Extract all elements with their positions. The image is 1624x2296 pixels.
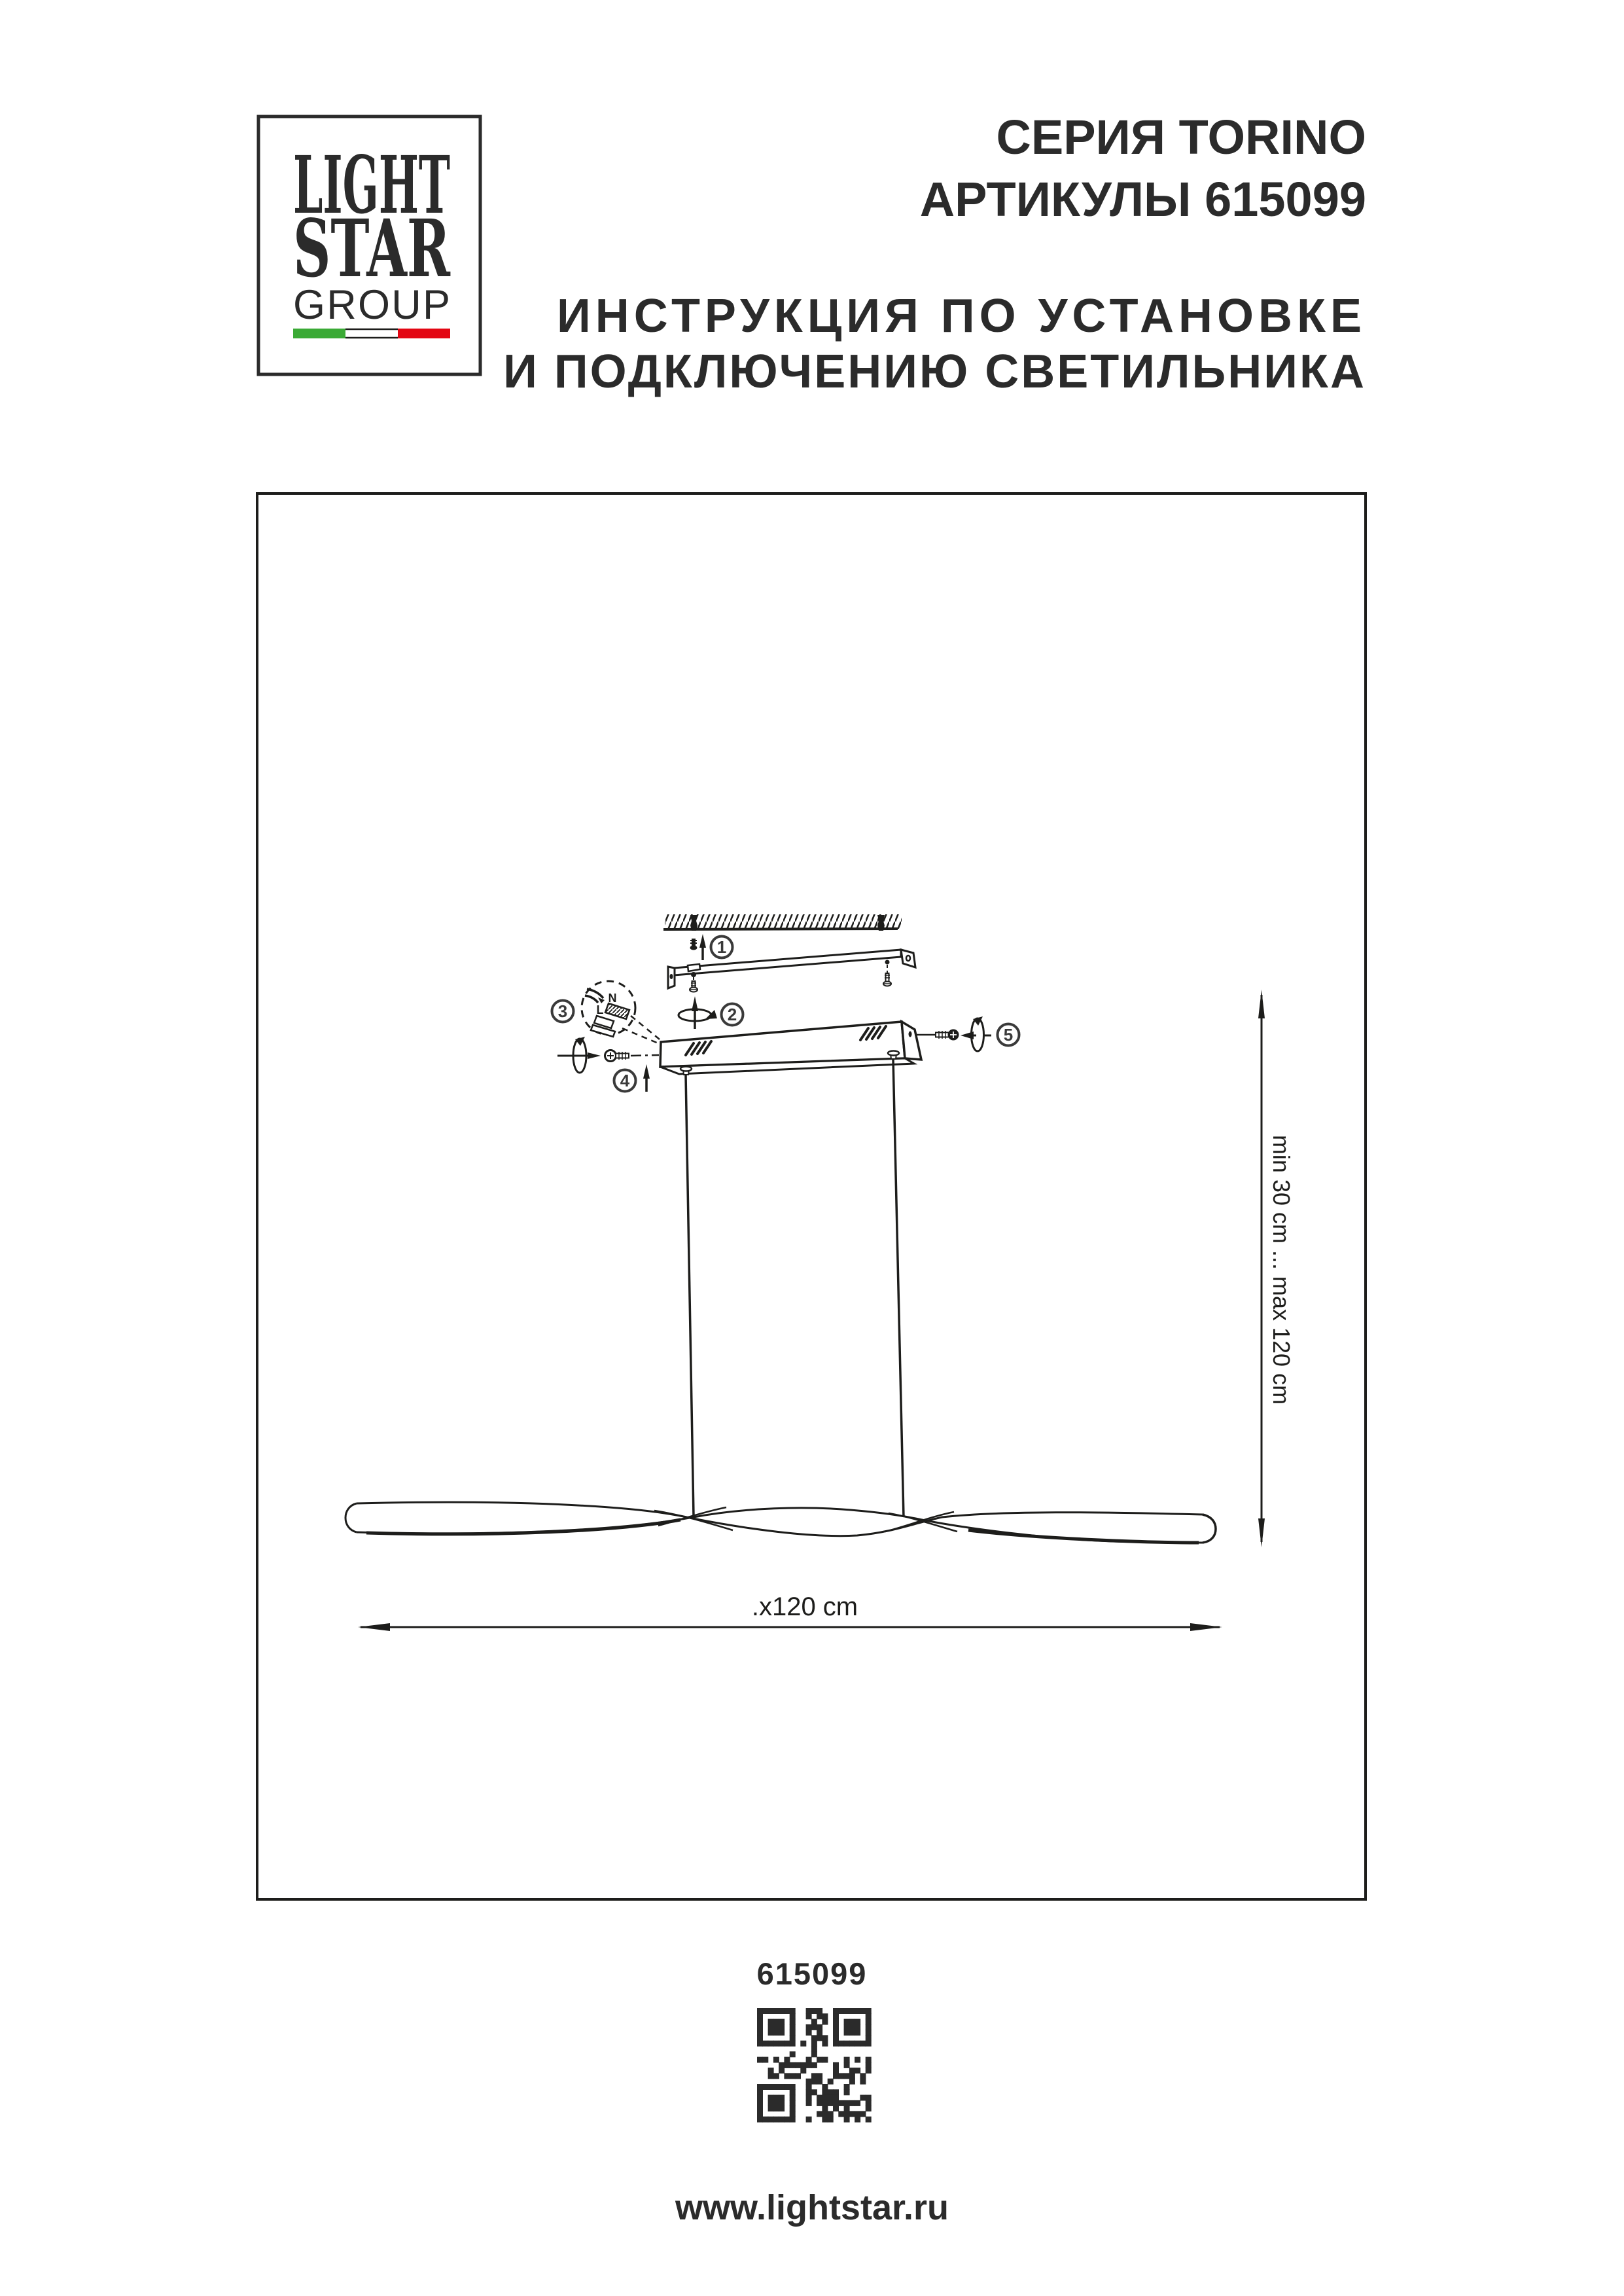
dimension-vertical-label: min 30 cm ... max 120 cm: [1268, 1135, 1295, 1405]
up-arrow-step4: [643, 1064, 650, 1092]
installation-diagram: 1: [0, 0, 1624, 2296]
pendant-lamp: [345, 1502, 1216, 1543]
bracket-screw-left: [690, 977, 697, 992]
callout-4: 4: [614, 1070, 636, 1092]
up-arrow-step1: [699, 934, 706, 960]
screw-4: [605, 1050, 629, 1062]
mounting-bracket: [668, 950, 915, 988]
dimension-horizontal-label: .x120 cm: [752, 1592, 858, 1621]
wire-label-n: N: [609, 992, 617, 1005]
step3-group: N L 3: [552, 981, 660, 1043]
ceiling-anchor-right: [877, 915, 885, 931]
footer-website: www.lightstar.ru: [0, 2187, 1624, 2228]
callout-4-label: 4: [620, 1071, 630, 1090]
qr-code: [757, 2008, 872, 2123]
suspension-cable-right: [893, 1059, 904, 1517]
wire-label-l: L: [597, 1003, 604, 1016]
ceiling-anchor-left: [690, 915, 697, 931]
suspension-cable-left: [686, 1075, 694, 1516]
step2-group: 2: [679, 996, 743, 1029]
canopy: [660, 1022, 921, 1075]
screw-hole-right-face: [909, 1031, 912, 1037]
step4-group: 4: [557, 1037, 659, 1092]
callout-1: 1: [711, 937, 733, 958]
callout-2-label: 2: [728, 1005, 737, 1024]
anchor-screw-icon: [690, 939, 697, 950]
instruction-sheet: LIGHT STAR GROUP СЕРИЯ TORINO АРТИКУЛЫ 6…: [0, 0, 1624, 2296]
diagram-frame: [257, 493, 1366, 1899]
callout-2: 2: [722, 1004, 743, 1026]
callout-5-label: 5: [1004, 1025, 1013, 1045]
callout-3-label: 3: [558, 1001, 567, 1021]
screw-5: [936, 1030, 959, 1041]
step5-group: 5: [915, 1016, 1019, 1051]
bracket-screw-right: [883, 960, 891, 986]
callout-3: 3: [552, 1001, 574, 1022]
dimension-vertical: min 30 cm ... max 120 cm: [1258, 990, 1295, 1547]
footer-article-number: 615099: [0, 1956, 1624, 1992]
dimension-horizontal: .x120 cm: [358, 1592, 1222, 1631]
ceiling: [663, 914, 902, 931]
callout-1-label: 1: [717, 937, 726, 957]
callout-5: 5: [998, 1024, 1019, 1046]
step1-group: 1: [690, 934, 733, 960]
